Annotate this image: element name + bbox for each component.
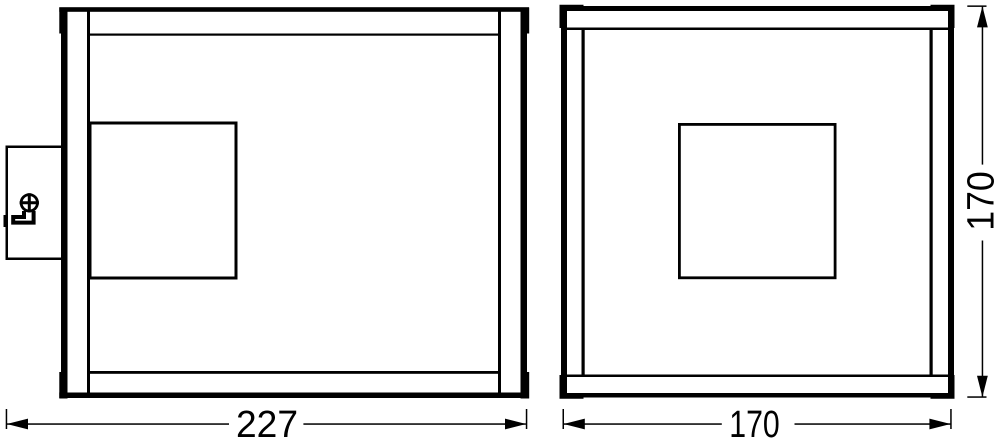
svg-text:170: 170 [961, 171, 1000, 231]
svg-text:170: 170 [729, 404, 780, 442]
svg-text:227: 227 [236, 404, 298, 442]
